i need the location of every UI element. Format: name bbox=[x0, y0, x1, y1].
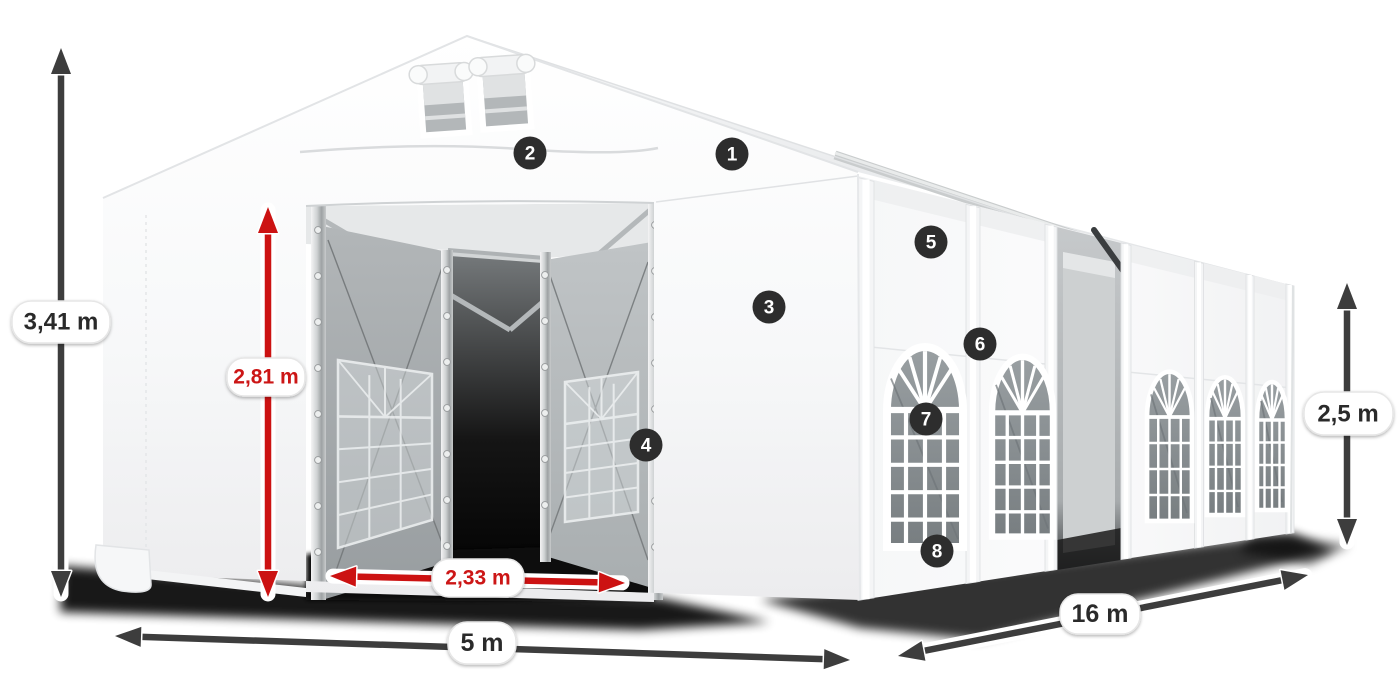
svg-text:3[interactable]: 3 bbox=[764, 298, 775, 319]
pole-clamp bbox=[444, 267, 451, 274]
dim-total-height-label: 3,41 m bbox=[12, 301, 110, 343]
pole-clamp bbox=[444, 543, 451, 550]
pole-clamp bbox=[315, 503, 322, 510]
side-window bbox=[1257, 382, 1287, 510]
dim-entrance-width-label: 2,33 m bbox=[432, 559, 524, 597]
dim-entrance-height-text: 2,81 m bbox=[233, 366, 298, 389]
entrance-door-left bbox=[322, 226, 453, 600]
side-window bbox=[992, 357, 1053, 537]
side-window bbox=[887, 347, 963, 547]
dim-entrance-height-arrow bbox=[258, 207, 278, 597]
side-door-leaf bbox=[1063, 252, 1115, 553]
side-window bbox=[1207, 377, 1243, 515]
pole-clamp bbox=[315, 273, 322, 280]
dim-front-width-text: 5 m bbox=[460, 629, 503, 657]
pole-clamp bbox=[444, 497, 451, 504]
pole-clamp bbox=[542, 502, 549, 509]
dim-entrance-height-label: 2,81 m bbox=[227, 358, 305, 396]
svg-text:1[interactable]: 1 bbox=[727, 145, 738, 166]
svg-text:4[interactable]: 4 bbox=[641, 436, 652, 457]
badge-7[interactable]: 7 bbox=[910, 403, 943, 436]
pole-clamp bbox=[315, 319, 322, 326]
svg-text:8[interactable]: 8 bbox=[932, 542, 943, 563]
entrance-door-right bbox=[540, 242, 652, 588]
badge-6[interactable]: 6 bbox=[964, 328, 997, 361]
dim-side-height-text: 2,5 m bbox=[1317, 401, 1378, 428]
svg-text:7[interactable]: 7 bbox=[921, 410, 932, 431]
svg-text:2[interactable]: 2 bbox=[525, 144, 536, 165]
door-window-print bbox=[565, 372, 638, 522]
dim-total-height-text: 3,41 m bbox=[24, 309, 99, 336]
pole-clamp bbox=[315, 549, 322, 556]
pole-clamp bbox=[542, 410, 549, 417]
door-window-print bbox=[338, 360, 432, 548]
pole-clamp bbox=[444, 405, 451, 412]
badge-4[interactable]: 4 bbox=[630, 429, 663, 462]
tent-diagram: 3,41 m 2,81 m 2,33 m 5 m 16 m 2,5 m 1 2 … bbox=[0, 0, 1400, 700]
dim-length-label: 16 m bbox=[1060, 594, 1140, 634]
side-window bbox=[1147, 372, 1192, 521]
pole-clamp bbox=[444, 313, 451, 320]
pole-clamp bbox=[315, 227, 322, 234]
svg-text:6[interactable]: 6 bbox=[975, 335, 986, 356]
pole-clamp bbox=[444, 451, 451, 458]
pole-clamp bbox=[542, 456, 549, 463]
entrance-interior bbox=[306, 203, 663, 602]
diagram-canvas: 3,41 m 2,81 m 2,33 m 5 m 16 m 2,5 m 1 2 … bbox=[0, 0, 1400, 700]
pole-clamp bbox=[542, 318, 549, 325]
entrance-pillar-left bbox=[311, 206, 326, 600]
dim-front-width-label: 5 m bbox=[448, 622, 516, 664]
dim-side-height-label: 2,5 m bbox=[1304, 392, 1393, 435]
badge-5[interactable]: 5 bbox=[915, 226, 948, 259]
pole-clamp bbox=[315, 411, 322, 418]
pole-clamp bbox=[542, 272, 549, 279]
side-door-opening bbox=[1057, 227, 1124, 570]
dim-entrance-width-text: 2,33 m bbox=[445, 567, 510, 590]
door-edge-pole bbox=[540, 252, 551, 562]
pole-clamp bbox=[315, 457, 322, 464]
svg-text:5[interactable]: 5 bbox=[926, 233, 937, 254]
badge-1[interactable]: 1 bbox=[716, 138, 749, 171]
badge-2[interactable]: 2 bbox=[514, 137, 547, 170]
badge-8[interactable]: 8 bbox=[921, 535, 954, 568]
dim-length-text: 16 m bbox=[1072, 600, 1129, 628]
badge-3[interactable]: 3 bbox=[753, 291, 786, 324]
pole-clamp bbox=[315, 365, 322, 372]
pole-clamp bbox=[444, 359, 451, 366]
pole-clamp bbox=[542, 364, 549, 371]
